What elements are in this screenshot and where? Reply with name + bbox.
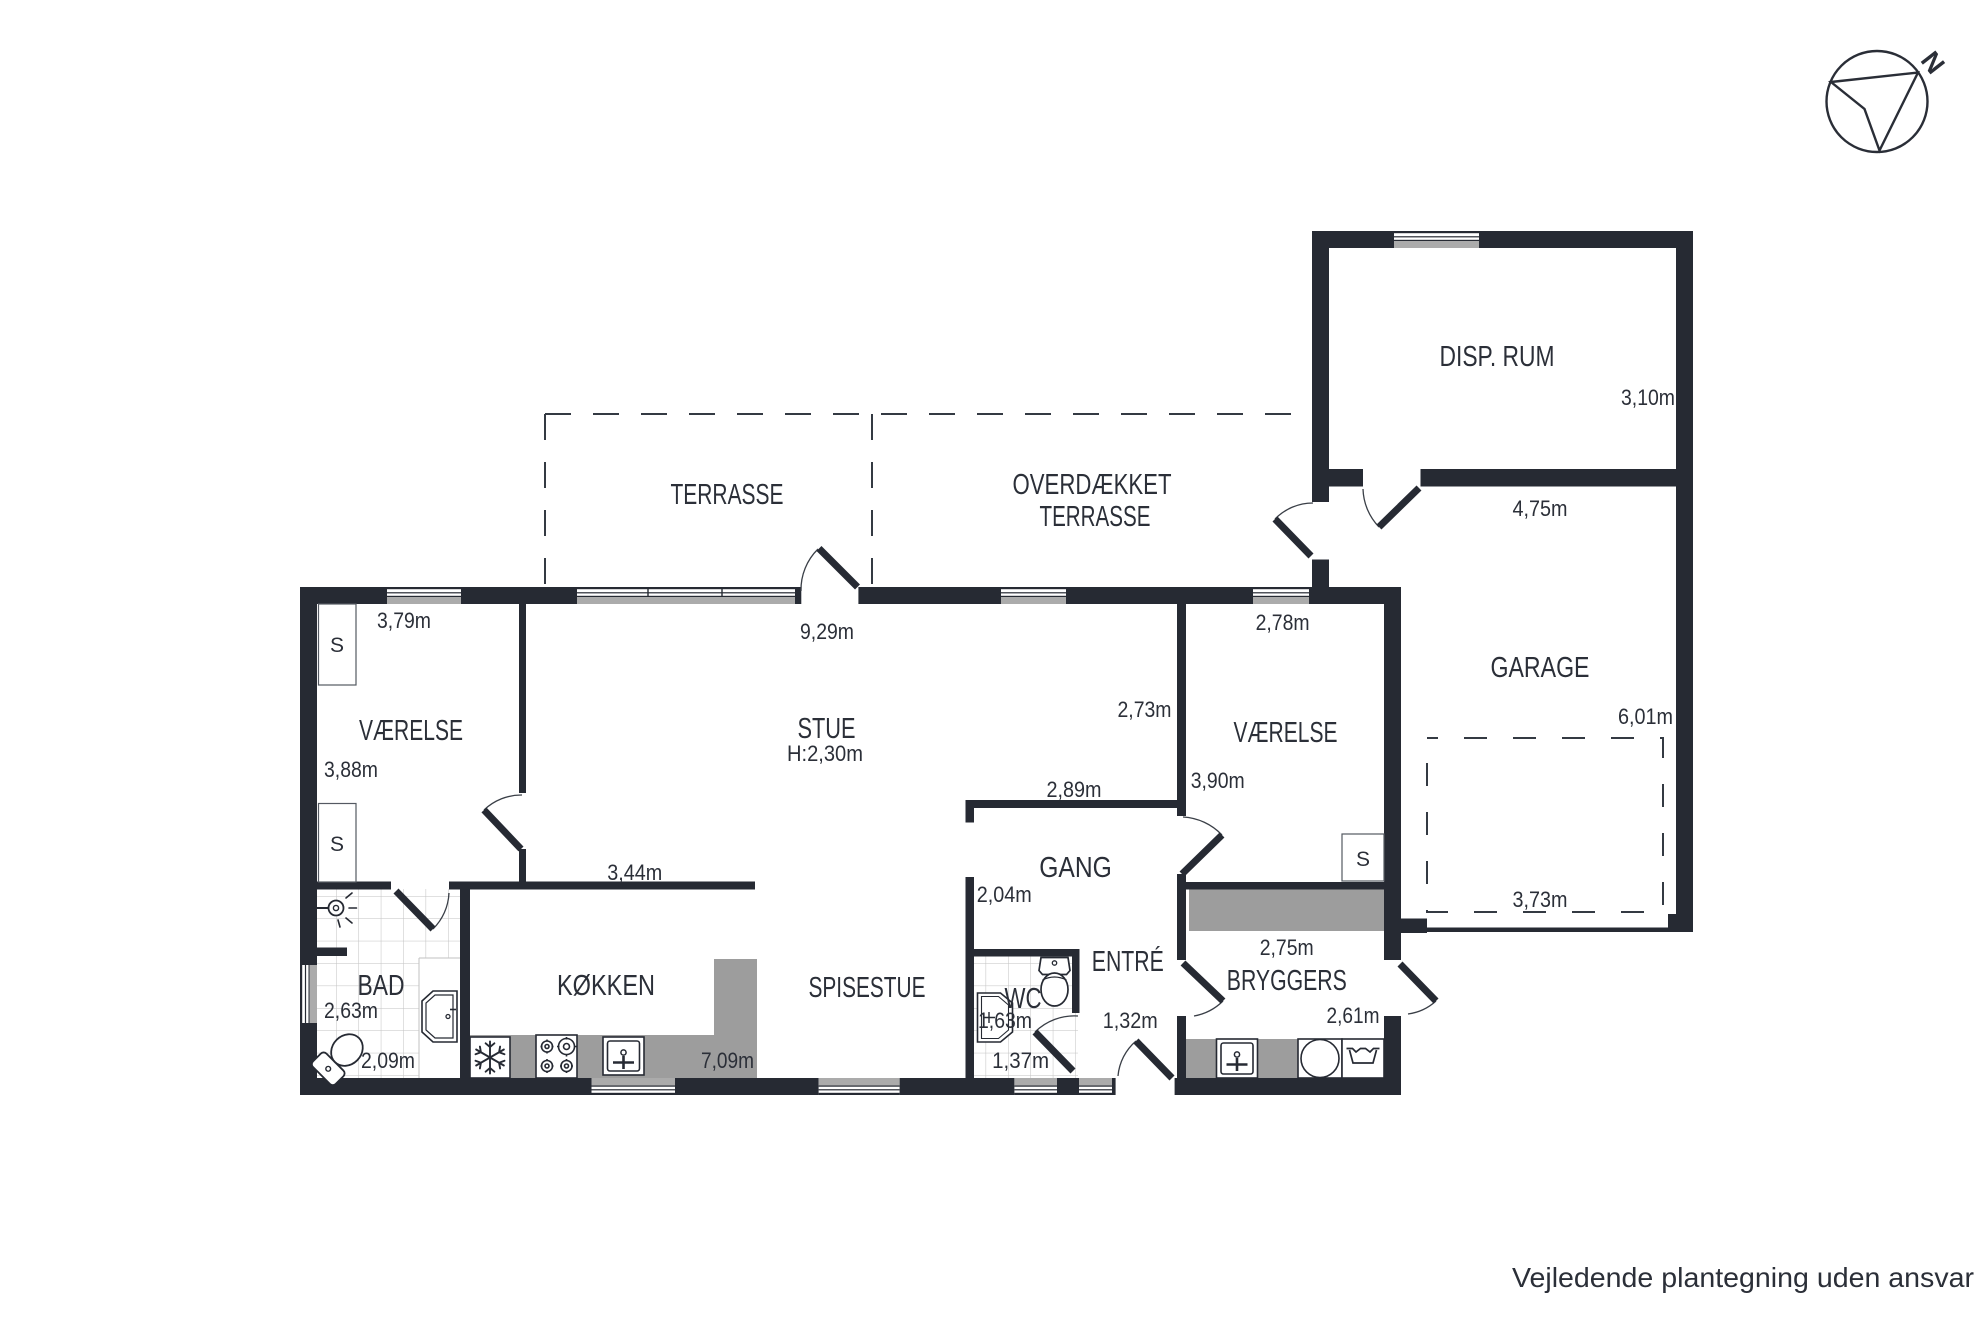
- svg-text:BRYGGERS: BRYGGERS: [1227, 965, 1347, 997]
- svg-text:S: S: [330, 833, 344, 856]
- svg-text:2,78m: 2,78m: [1256, 610, 1310, 635]
- svg-text:9,29m: 9,29m: [800, 619, 854, 644]
- svg-text:2,73m: 2,73m: [1118, 697, 1172, 722]
- svg-text:1,37m: 1,37m: [992, 1048, 1049, 1073]
- svg-text:2,63m: 2,63m: [324, 998, 378, 1023]
- svg-text:Vejledende plantegning uden an: Vejledende plantegning uden ansvar: [1512, 1262, 1974, 1293]
- svg-text:GARAGE: GARAGE: [1491, 652, 1590, 684]
- svg-text:4,75m: 4,75m: [1513, 496, 1568, 521]
- svg-text:S: S: [1356, 848, 1370, 871]
- svg-text:ENTRÉ: ENTRÉ: [1092, 945, 1164, 978]
- svg-text:1,63m: 1,63m: [978, 1008, 1032, 1033]
- svg-text:2,04m: 2,04m: [977, 882, 1032, 907]
- svg-text:2,61m: 2,61m: [1327, 1003, 1380, 1028]
- svg-text:KØKKEN: KØKKEN: [557, 970, 655, 1002]
- svg-text:GANG: GANG: [1039, 852, 1112, 884]
- svg-text:VÆRELSE: VÆRELSE: [1234, 717, 1338, 749]
- svg-text:3,73m: 3,73m: [1513, 887, 1568, 912]
- svg-text:3,10m: 3,10m: [1621, 385, 1675, 410]
- svg-text:TERRASSE: TERRASSE: [1040, 501, 1151, 533]
- svg-text:3,44m: 3,44m: [607, 860, 662, 885]
- svg-text:7,09m: 7,09m: [701, 1048, 754, 1073]
- svg-text:DISP. RUM: DISP. RUM: [1440, 341, 1555, 373]
- svg-text:TERRASSE: TERRASSE: [671, 479, 784, 511]
- svg-text:3,90m: 3,90m: [1191, 768, 1245, 793]
- svg-text:S: S: [330, 634, 344, 657]
- svg-text:6,01m: 6,01m: [1618, 704, 1673, 729]
- svg-text:H:2,30m: H:2,30m: [787, 741, 863, 766]
- svg-text:1,32m: 1,32m: [1103, 1008, 1158, 1033]
- svg-text:OVERDÆKKET: OVERDÆKKET: [1013, 469, 1172, 501]
- svg-text:2,89m: 2,89m: [1047, 777, 1102, 802]
- svg-text:SPISESTUE: SPISESTUE: [809, 972, 926, 1004]
- svg-text:2,75m: 2,75m: [1260, 935, 1314, 960]
- svg-text:3,88m: 3,88m: [324, 757, 378, 782]
- svg-text:VÆRELSE: VÆRELSE: [359, 715, 463, 747]
- svg-text:2,09m: 2,09m: [361, 1048, 415, 1073]
- svg-text:3,79m: 3,79m: [377, 608, 431, 633]
